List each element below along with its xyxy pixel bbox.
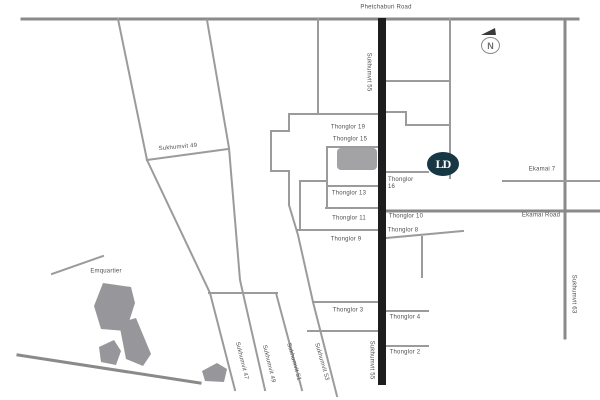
emquartier-building — [119, 318, 151, 366]
label-thonglor-16-line1: Thonglor — [388, 177, 413, 184]
label-thonglor-9: Thonglor 9 — [331, 237, 362, 244]
label-thonglor-3: Thonglor 3 — [333, 308, 364, 315]
west-stair-road — [271, 114, 289, 205]
label-thonglor-16-line2: 16 — [388, 184, 413, 191]
property-building — [337, 148, 377, 170]
emquartier-building — [99, 340, 121, 365]
label-thonglor-19: Thonglor 19 — [331, 125, 365, 132]
building-blob — [202, 363, 227, 382]
sukhumvit49-soi-line — [207, 20, 265, 390]
label-thonglor-10: Thonglor 10 — [389, 214, 423, 221]
label-thonglor-2: Thonglor 2 — [390, 350, 421, 357]
north-arrow-icon — [478, 26, 504, 36]
label-emquartier: Emquartier — [90, 269, 121, 276]
northwest-diagonal-road — [118, 19, 147, 160]
label-phetchaburi-road: Phetchaburi Road — [360, 5, 411, 12]
compass-north-letter: N — [487, 41, 494, 51]
label-thonglor-13: Thonglor 13 — [332, 191, 366, 198]
label-thonglor-8: Thonglor 8 — [388, 228, 419, 235]
label-ekamai-road: Ekamai Road — [522, 213, 560, 220]
label-ekamai-7: Ekamai 7 — [529, 167, 556, 174]
label-thonglor-16: Thonglor 16 — [388, 177, 413, 191]
sukhumvit47-soi-line — [147, 160, 235, 390]
label-thonglor-15: Thonglor 15 — [333, 137, 367, 144]
property-logo: LD — [427, 152, 459, 176]
map-canvas: Phetchaburi Road Sukhumvit 55 Sukhumvit … — [0, 0, 600, 400]
road-network — [0, 0, 600, 400]
compass: N — [478, 26, 504, 58]
label-sukhumvit-63: Sukhumvit 63 — [570, 275, 577, 314]
label-thonglor-11: Thonglor 11 — [332, 216, 366, 223]
compass-circle: N — [481, 37, 500, 54]
label-sukhumvit-55-top: Sukhumvit 55 — [365, 53, 372, 92]
label-sukhumvit-55-bottom: Sukhumvit 55 — [368, 341, 375, 380]
label-thonglor-4: Thonglor 4 — [390, 315, 421, 322]
east-step-road — [386, 112, 450, 125]
property-logo-monogram: LD — [436, 157, 451, 172]
